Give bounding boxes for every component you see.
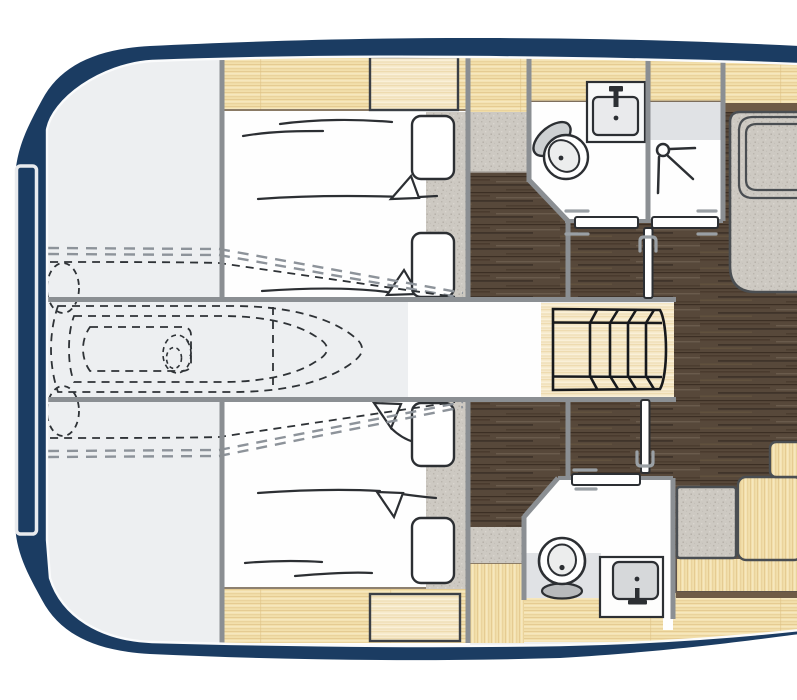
cabinet-trim: [723, 103, 797, 112]
sink-icon-bottom: [600, 557, 663, 617]
door-bathroom-top: [575, 217, 638, 228]
door-bathroom-bottom: [572, 474, 640, 485]
shower-bench: [650, 102, 721, 140]
stern-wood-band: [676, 558, 797, 592]
carpet-strip-bottom: [468, 527, 524, 563]
pillow: [412, 116, 454, 179]
center-passage-white: [408, 301, 541, 398]
cabinet-box-top: [370, 57, 458, 110]
step-box-high: [770, 442, 797, 477]
sink-icon-top: [587, 82, 645, 142]
cabinet-box-bottom: [370, 594, 460, 641]
floor-plan-canvas: [0, 0, 797, 700]
staircase: [541, 303, 674, 397]
toilet-icon-bottom: [539, 538, 585, 599]
side-wood-strip: [468, 563, 524, 643]
step-box-low: [738, 477, 797, 560]
pillow: [412, 518, 454, 583]
door-shower: [652, 217, 718, 228]
sofa-seat: [730, 112, 797, 292]
carpet-strip-top: [468, 112, 529, 172]
floor-plan-svg: [0, 0, 797, 700]
door-corridor-bottom: [641, 400, 650, 473]
stern-trim: [676, 592, 797, 598]
seat-cushion: [677, 487, 736, 558]
